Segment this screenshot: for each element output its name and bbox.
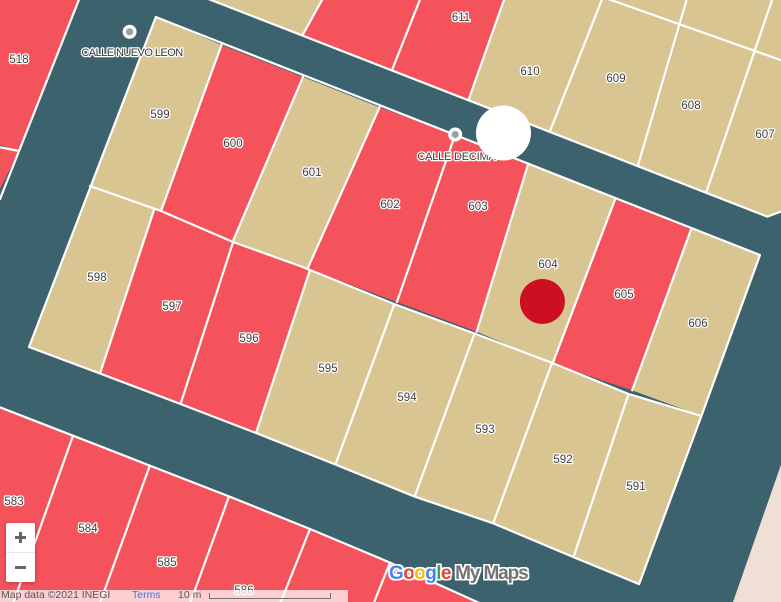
svg-text:585: 585 <box>157 557 176 569</box>
svg-text:599: 599 <box>150 109 169 121</box>
svg-text:597: 597 <box>162 301 181 313</box>
svg-text:598: 598 <box>87 272 106 284</box>
svg-text:605: 605 <box>614 289 633 301</box>
svg-text:604: 604 <box>538 259 558 271</box>
svg-text:601: 601 <box>302 167 321 179</box>
svg-text:584: 584 <box>78 523 98 535</box>
svg-text:583: 583 <box>4 496 23 508</box>
svg-text:600: 600 <box>223 138 242 150</box>
svg-text:611: 611 <box>452 12 470 24</box>
svg-text:518: 518 <box>9 54 28 66</box>
svg-text:609: 609 <box>606 73 625 85</box>
svg-text:594: 594 <box>397 392 417 404</box>
svg-text:595: 595 <box>318 363 337 375</box>
svg-text:CALLE NUEVO LEON: CALLE NUEVO LEON <box>81 47 183 59</box>
svg-text:610: 610 <box>520 66 539 78</box>
svg-text:596: 596 <box>239 333 258 345</box>
svg-text:607: 607 <box>755 129 774 141</box>
svg-text:602: 602 <box>380 199 399 211</box>
svg-text:606: 606 <box>688 318 707 330</box>
svg-text:591: 591 <box>626 481 645 493</box>
svg-text:603: 603 <box>468 201 487 213</box>
svg-text:593: 593 <box>475 424 494 436</box>
svg-text:592: 592 <box>553 454 572 466</box>
svg-text:608: 608 <box>681 100 700 112</box>
